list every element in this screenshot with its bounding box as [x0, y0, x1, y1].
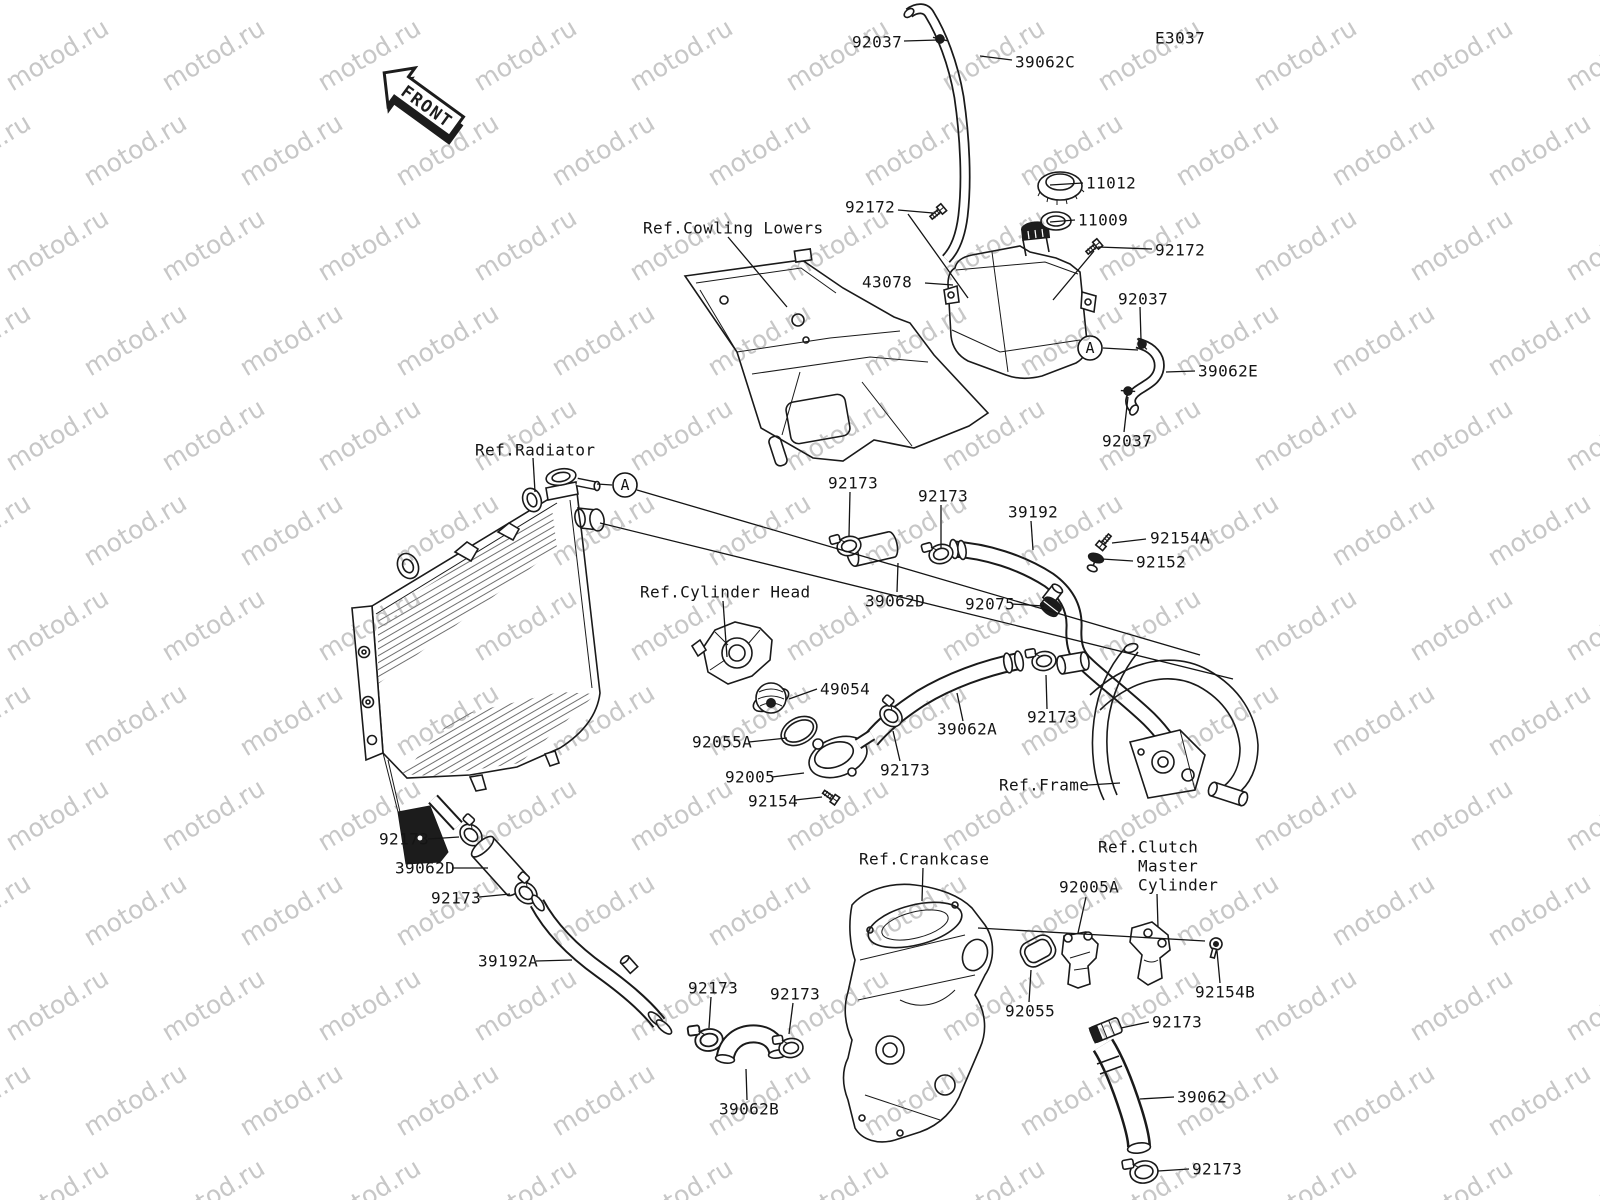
label-92154A: 92154A — [1150, 529, 1210, 548]
label-92154B: 92154B — [1195, 983, 1255, 1002]
label-92154: 92154 — [748, 792, 798, 811]
label-39062E: 39062E — [1198, 362, 1258, 381]
ref-radiator: Ref.Radiator — [475, 441, 595, 460]
label-92005: 92005 — [725, 768, 775, 787]
label-92055A: 92055A — [692, 733, 752, 752]
label-39062D-left: 39062D — [395, 859, 455, 878]
ref-cowling-lowers: Ref.Cowling Lowers — [643, 219, 824, 238]
label-49054: 49054 — [820, 680, 870, 699]
label-92037-low: 92037 — [1102, 432, 1152, 451]
label-92172-right: 92172 — [1155, 241, 1205, 260]
label-92173-1: 92173 — [828, 474, 878, 493]
label-39192: 39192 — [1008, 503, 1058, 522]
label-11012: 11012 — [1086, 174, 1136, 193]
label-39062: 39062 — [1177, 1088, 1227, 1107]
ref-frame: Ref.Frame — [999, 776, 1089, 795]
ref-clutch-line2: Master — [1138, 857, 1198, 876]
label-39192A: 39192A — [478, 952, 538, 971]
label-92172-left: 92172 — [845, 198, 895, 217]
ref-clutch-line3: Cylinder — [1138, 876, 1218, 895]
label-39062C: 39062C — [1015, 53, 1075, 72]
label-92173-6: 92173 — [431, 889, 481, 908]
ref-clutch-line1: Ref.Clutch — [1098, 838, 1198, 857]
label-92055: 92055 — [1005, 1002, 1055, 1021]
label-43078: 43078 — [862, 273, 912, 292]
label-92152: 92152 — [1136, 553, 1186, 572]
ref-crankcase: Ref.Crankcase — [859, 850, 989, 869]
label-92173-2: 92173 — [918, 487, 968, 506]
label-39062A: 39062A — [937, 720, 997, 739]
parts-diagram-page: FRONT — [0, 0, 1600, 1200]
label-92173-3: 92173 — [880, 761, 930, 780]
label-92075: 92075 — [965, 595, 1015, 614]
label-92173-7: 92173 — [688, 979, 738, 998]
label-92005A: 92005A — [1059, 878, 1119, 897]
label-92173-8: 92173 — [770, 985, 820, 1004]
label-92173-4: 92173 — [1027, 708, 1077, 727]
label-92173-9: 92173 — [1152, 1013, 1202, 1032]
label-39062D-mid: 39062D — [865, 592, 925, 611]
label-92037-mid: 92037 — [1118, 290, 1168, 309]
label-11009: 11009 — [1078, 211, 1128, 230]
label-39062B: 39062B — [719, 1100, 779, 1119]
ref-cylinder-head: Ref.Cylinder Head — [640, 583, 811, 602]
label-92037-top: 92037 — [852, 33, 902, 52]
label-92173-10: 92173 — [1192, 1160, 1242, 1179]
diagram-code: E3037 — [1155, 29, 1205, 48]
callout-labels-layer: 9203739062CE3037921721101211009921724307… — [0, 0, 1600, 1200]
label-92173-5: 92173 — [379, 830, 429, 849]
